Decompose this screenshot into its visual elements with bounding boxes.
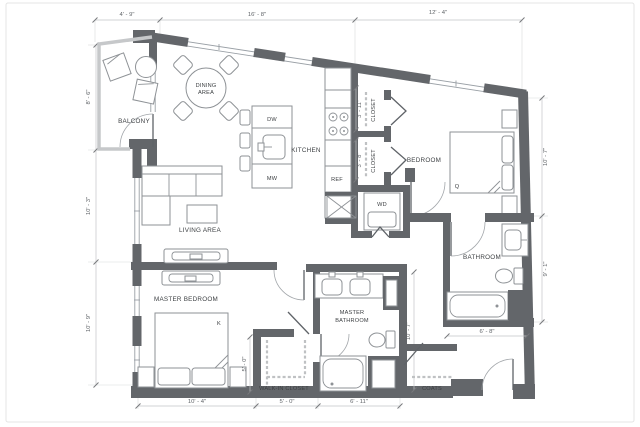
island-faucet-icon (258, 143, 264, 151)
kitchen-label: KITCHEN (291, 147, 321, 154)
refrigerator-label: REF (331, 177, 343, 183)
pillow-icon (192, 368, 225, 385)
dim-bottom-master: 10' - 4" (188, 399, 206, 405)
dim-bottom-closet: 5' - 0" (279, 399, 294, 405)
master-bedroom-door (274, 270, 304, 300)
bathroom-dim: 6' - 8" (479, 329, 494, 335)
closet-lower-door (391, 147, 406, 175)
dimension-left: 8' - 6" 10' - 3" 10' - 9" (86, 43, 133, 388)
dimension-top: 4' - 9" 16' - 8" 12' - 4" (93, 10, 525, 91)
laundry-closet: WD (358, 185, 410, 238)
nightstand-icon (502, 110, 517, 128)
pillow-icon (502, 165, 513, 190)
king-bed-label: K (217, 321, 221, 327)
bathtub-icon (447, 292, 508, 320)
tv-console-icon (162, 271, 220, 285)
dining-label-line2: AREA (198, 90, 214, 96)
walk-in-closet-label: WALK-IN CLOSET (259, 386, 309, 392)
sink-icon (505, 230, 521, 250)
closet-upper-dim: 3' - 11" (357, 100, 363, 118)
dim-left-living: 10' - 3" (86, 197, 92, 215)
pillow-icon (502, 136, 513, 163)
dining-chair-icon (172, 100, 193, 121)
linen-counter-icon (386, 280, 397, 306)
double-vanity-icon (315, 272, 383, 298)
master-bathroom-label-line1: MASTER (340, 310, 365, 316)
bedroom-door (411, 182, 445, 216)
toilet-icon (496, 268, 524, 284)
bathroom: BATHROOM 6' - 8" (408, 213, 534, 339)
closet-lower-label: CLOSET (371, 149, 377, 173)
closet-lower-dim: 3' - 8" (357, 152, 363, 167)
toilet-icon (369, 331, 395, 348)
balcony-chair-icon (103, 53, 131, 81)
master-bath-dim: 10' - 7" (406, 322, 412, 340)
tv-console-icon (164, 249, 228, 263)
dim-bottom-bath: 6' - 11" (350, 399, 368, 405)
dining-chair-icon (218, 100, 239, 121)
bar-stool-icon (240, 156, 250, 171)
hall-closets: 3' - 11" CLOSET 3' - 8" CLOSET (354, 86, 407, 189)
living-area: LIVING AREA (142, 166, 222, 234)
floor-plan-drawing: 4' - 9" 16' - 8" 12' - 4" 8' - 6" 10' - … (0, 0, 640, 427)
closet-upper-label: CLOSET (371, 98, 377, 122)
walk-in-closet: WALK-IN CLOSET 5' - 0" (242, 312, 309, 395)
bar-stool-icon (240, 110, 250, 125)
bathroom-door (451, 222, 485, 256)
dim-left-master: 10' - 9" (86, 314, 92, 332)
bedroom: Q BEDROOM (405, 110, 517, 216)
dim-top-balcony: 4' - 9" (119, 12, 134, 18)
microwave-label: MW (267, 176, 278, 182)
dishwasher-label: DW (267, 117, 277, 123)
queen-bed-label: Q (455, 184, 460, 190)
nightstand-icon (138, 367, 154, 387)
kitchen: REF DW MW KITCHEN (240, 64, 358, 238)
linen-cabinet-icon (372, 360, 395, 388)
master-bedroom-label: MASTER BEDROOM (154, 296, 218, 303)
dining-chair-icon (218, 54, 239, 75)
bathtub-icon (320, 356, 366, 391)
bathroom-label: BATHROOM (463, 254, 501, 261)
balcony-table-icon (136, 57, 157, 78)
dining-area: DINING AREA (172, 54, 239, 121)
balcony-label: BALCONY (118, 118, 150, 125)
dining-chair-icon (172, 54, 193, 75)
bar-stool-icon (240, 133, 250, 148)
washer-dryer-label: WD (377, 202, 387, 208)
floor-plan-page: 4' - 9" 16' - 8" 12' - 4" 8' - 6" 10' - … (0, 0, 640, 427)
dim-right-bedroom: 10' - 7" (543, 148, 549, 166)
coffee-table-icon (187, 205, 217, 223)
entry-door (482, 359, 513, 390)
nightstand-icon (502, 196, 517, 214)
dim-left-balcony: 8' - 6" (86, 89, 92, 104)
dim-top-main: 16' - 8" (248, 12, 266, 18)
bedroom-label: BEDROOM (407, 157, 441, 164)
balcony-chair-icon (133, 79, 158, 104)
master-bedroom: K MASTER BEDROOM (131, 249, 304, 388)
pillow-icon (158, 368, 190, 385)
walk-in-dim: 5' - 0" (242, 356, 248, 371)
dining-label-line1: DINING (196, 83, 217, 89)
master-bathroom: MASTER BATHROOM 10' - 7" (306, 264, 417, 393)
dim-top-bedroom: 12' - 4" (429, 10, 447, 16)
living-label: LIVING AREA (179, 227, 221, 234)
closet-upper-door (391, 97, 406, 125)
coats-label: COATS (422, 386, 442, 392)
dim-right-bathroom: 9' - 1" (543, 261, 549, 276)
master-bathroom-label-line2: BATHROOM (335, 318, 369, 324)
